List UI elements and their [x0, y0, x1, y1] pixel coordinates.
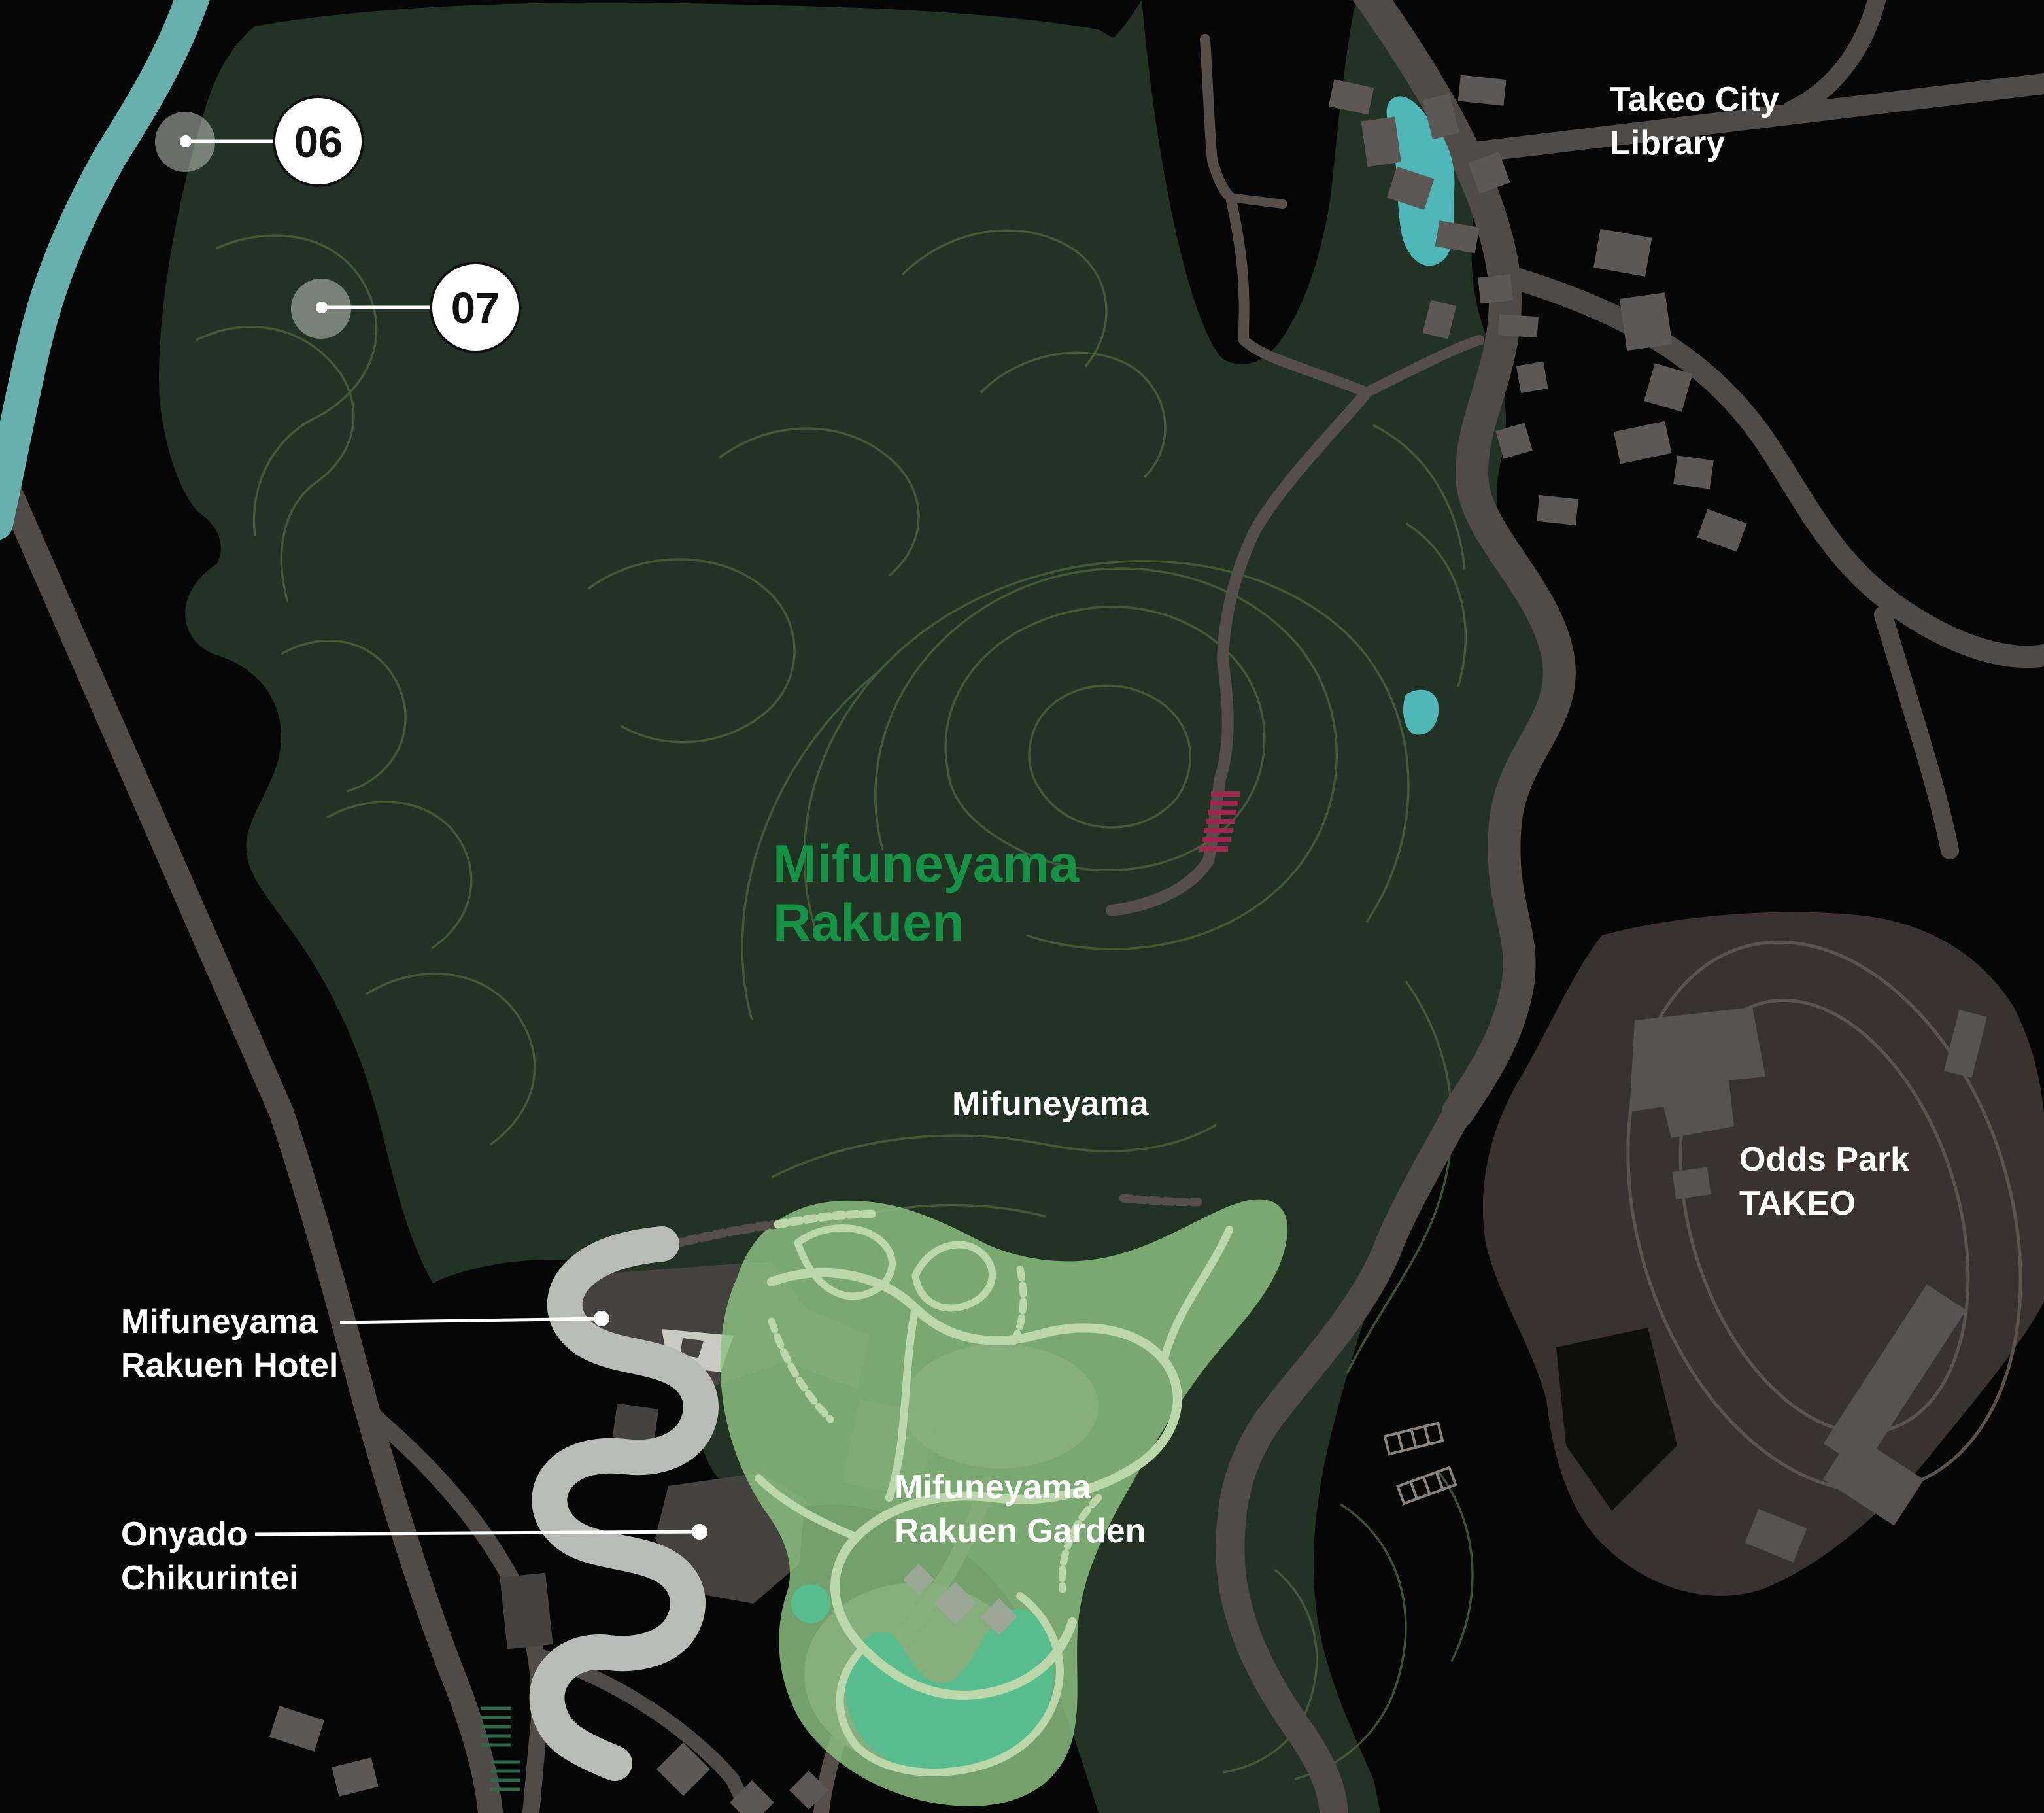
map-canvas: 06 07 Takeo City Library Mifuneyama Raku…: [0, 0, 2044, 1813]
label-hotel-line1: Mifuneyama: [121, 1303, 318, 1341]
river: [0, 0, 196, 523]
label-onyado-line2: Chikurintei: [121, 1559, 299, 1597]
hotel-leader-dot: [594, 1311, 609, 1326]
label-takeo-city-library-line1: Takeo City: [1610, 80, 1779, 118]
marker-number: 06: [294, 118, 343, 167]
parking-lot-icon: [1385, 1423, 1456, 1504]
road-right-down: [1883, 615, 1950, 850]
label-mifuneyama-rakuen-line1: Mifuneyama: [773, 835, 1080, 893]
label-garden-line2: Rakuen Garden: [894, 1512, 1146, 1550]
label-odds-park-line1: Odds Park: [1739, 1141, 1909, 1179]
label-mifuneyama-peak: Mifuneyama: [952, 1085, 1150, 1123]
label-onyado-line1: Onyado: [121, 1515, 248, 1553]
label-odds-park-line2: TAKEO: [1739, 1184, 1856, 1222]
map-svg: 06 07 Takeo City Library Mifuneyama Raku…: [0, 0, 2044, 1813]
marker-number: 07: [451, 284, 500, 333]
road-top-corner: [1792, 0, 1877, 110]
label-takeo-city-library-line2: Library: [1610, 124, 1725, 162]
village-lane-branch: [1231, 198, 1283, 204]
label-garden-line1: Mifuneyama: [894, 1468, 1092, 1506]
onyado-leader-dot: [692, 1524, 707, 1540]
label-mifuneyama-rakuen-line2: Rakuen: [773, 893, 964, 952]
label-hotel-line2: Rakuen Hotel: [121, 1347, 338, 1385]
road-right-curve: [1503, 275, 2044, 657]
